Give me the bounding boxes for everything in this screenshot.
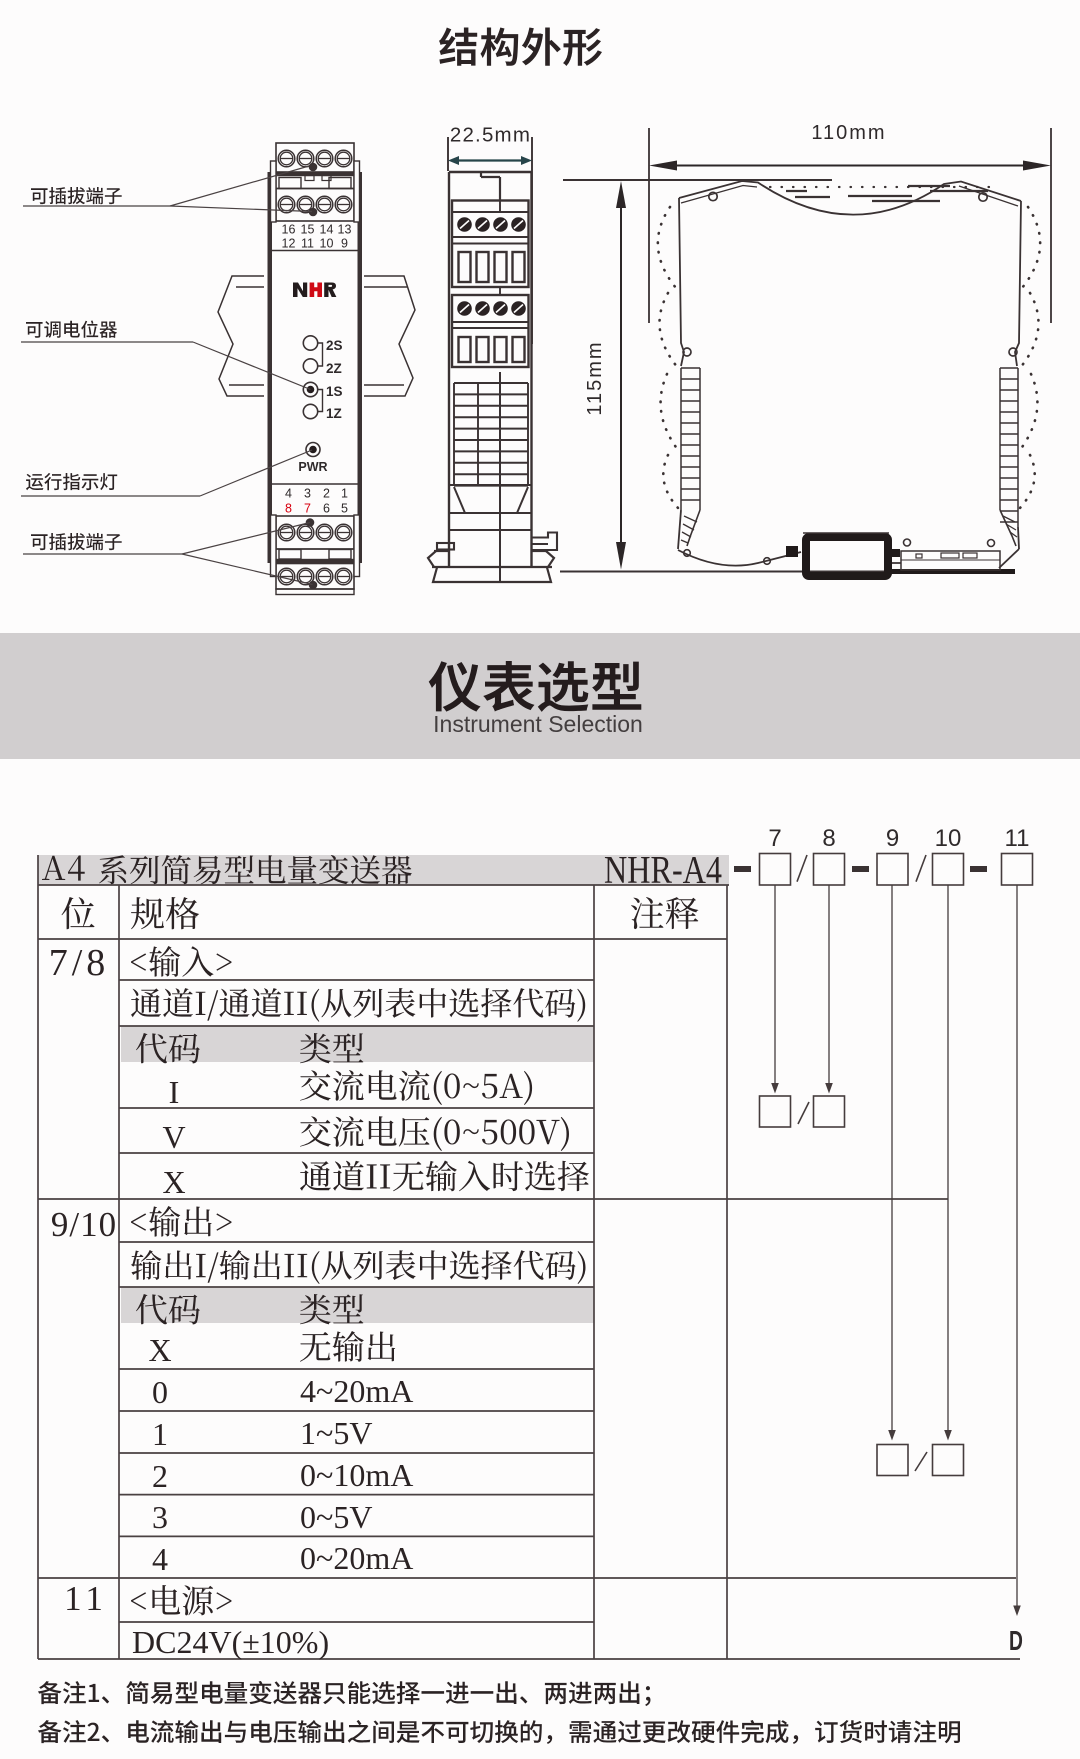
- svg-text:11: 11: [1005, 825, 1030, 852]
- svg-text:10: 10: [320, 237, 334, 251]
- svg-text:15: 15: [301, 223, 315, 237]
- svg-text:12: 12: [282, 237, 296, 251]
- svg-text:3: 3: [304, 487, 311, 501]
- svg-text:Instrument Selection: Instrument Selection: [433, 711, 643, 737]
- svg-text:16: 16: [282, 223, 296, 237]
- svg-text:0~20mA: 0~20mA: [300, 1540, 413, 1576]
- svg-text:1: 1: [152, 1416, 168, 1452]
- svg-text:4: 4: [285, 487, 292, 501]
- svg-text:I: I: [169, 1074, 180, 1110]
- svg-text:2Z: 2Z: [326, 361, 342, 376]
- svg-text:NHR-A4: NHR-A4: [604, 849, 722, 892]
- svg-text:1: 1: [341, 487, 348, 501]
- svg-text:X: X: [148, 1332, 171, 1368]
- svg-text:110mm: 110mm: [811, 122, 886, 144]
- svg-text:11: 11: [301, 237, 314, 251]
- svg-text:4~20mA: 4~20mA: [300, 1373, 413, 1409]
- svg-text:8: 8: [285, 502, 292, 516]
- svg-text:1Z: 1Z: [326, 406, 342, 421]
- svg-text:9: 9: [341, 237, 348, 251]
- svg-text:13: 13: [338, 223, 352, 237]
- svg-text:5: 5: [341, 502, 348, 516]
- svg-text:11: 11: [64, 1579, 108, 1618]
- svg-text:0~5V: 0~5V: [300, 1499, 372, 1535]
- svg-text:10: 10: [935, 825, 962, 852]
- svg-text:9/10: 9/10: [51, 1205, 117, 1244]
- svg-text:14: 14: [320, 223, 334, 237]
- svg-text:2S: 2S: [326, 338, 343, 353]
- svg-text:V: V: [162, 1119, 185, 1155]
- svg-text:2: 2: [152, 1458, 168, 1494]
- svg-text:4: 4: [152, 1541, 168, 1577]
- svg-text:0~10mA: 0~10mA: [300, 1457, 413, 1493]
- svg-text:6: 6: [323, 502, 330, 516]
- svg-text:115mm: 115mm: [584, 340, 606, 415]
- svg-text:1~5V: 1~5V: [300, 1415, 372, 1451]
- svg-text:7: 7: [304, 502, 311, 516]
- svg-text:9: 9: [886, 825, 899, 852]
- svg-text:3: 3: [152, 1499, 168, 1535]
- svg-text:0: 0: [152, 1374, 168, 1410]
- svg-text:7: 7: [768, 825, 781, 852]
- svg-text:DC24V(±10%): DC24V(±10%): [132, 1624, 329, 1660]
- svg-text:2: 2: [323, 487, 330, 501]
- svg-text:22.5mm: 22.5mm: [450, 124, 531, 147]
- svg-text:D: D: [1009, 1627, 1023, 1657]
- svg-text:PWR: PWR: [298, 460, 327, 474]
- svg-text:7/8: 7/8: [49, 942, 110, 984]
- svg-text:1S: 1S: [326, 384, 343, 399]
- svg-text:8: 8: [822, 825, 835, 852]
- svg-text:X: X: [162, 1164, 185, 1200]
